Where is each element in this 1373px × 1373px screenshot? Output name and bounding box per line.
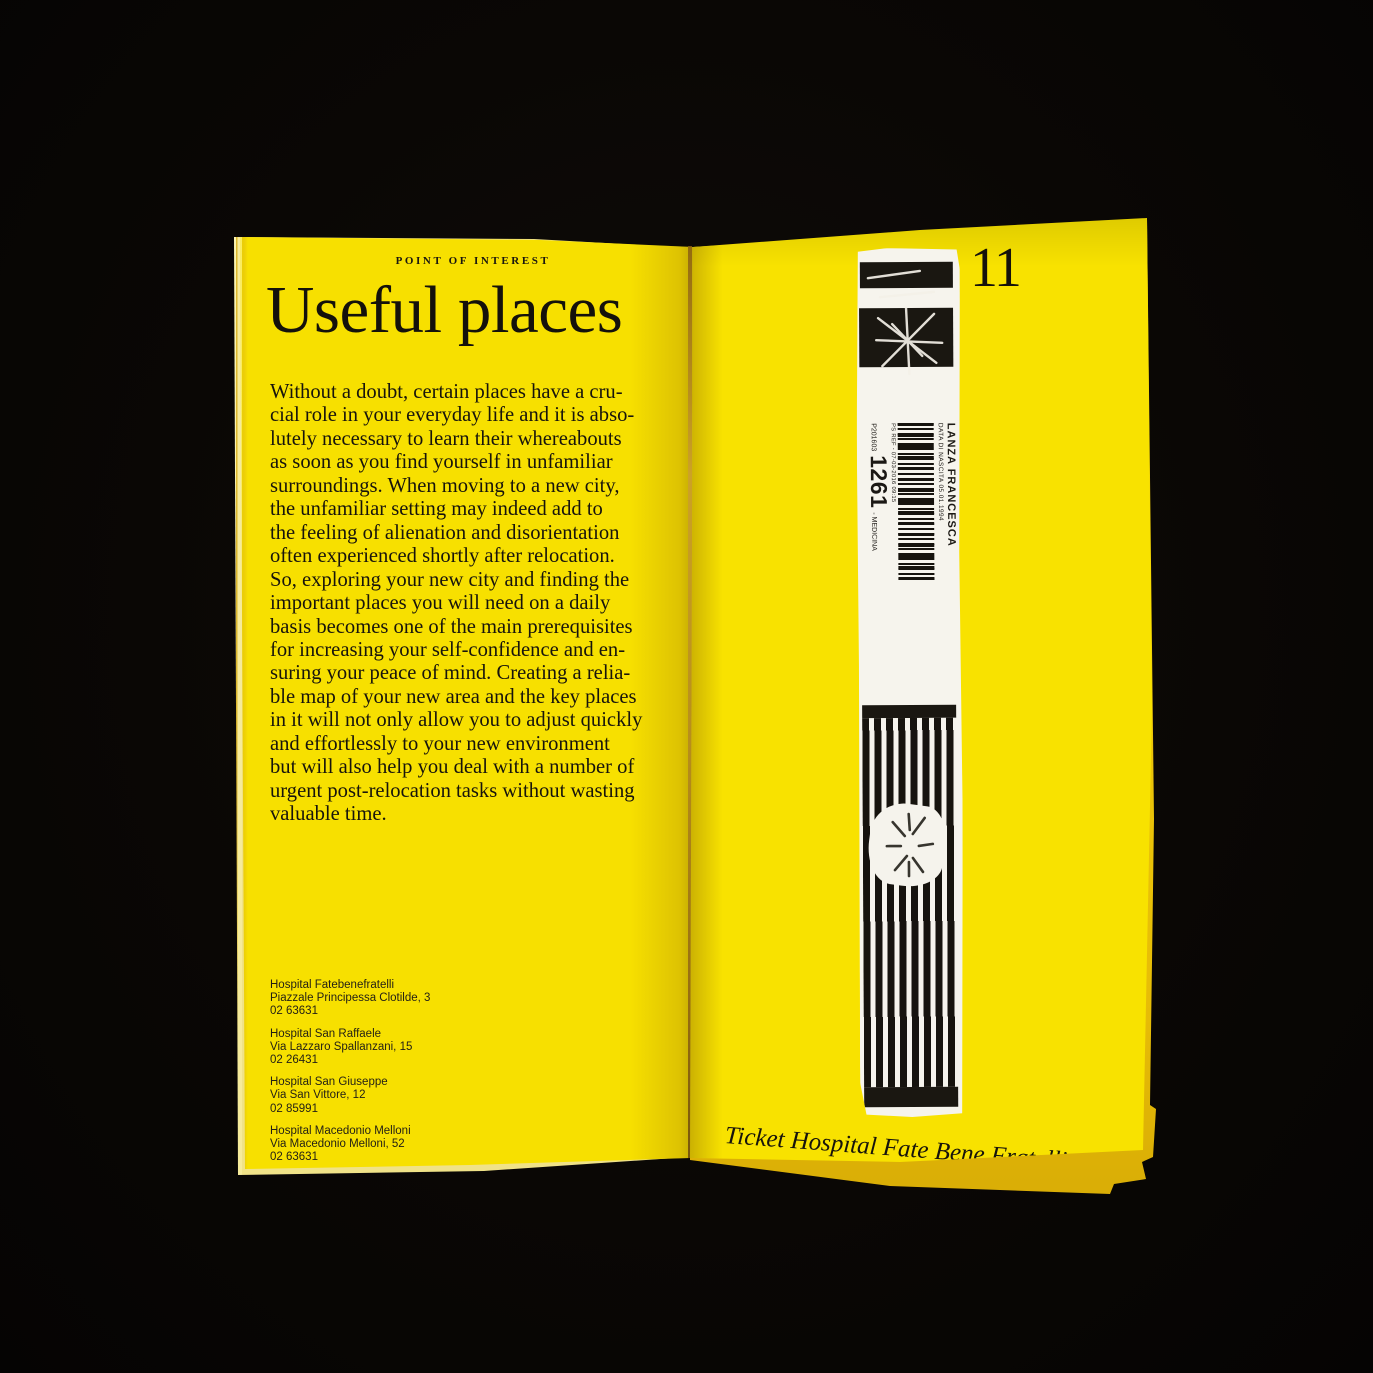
hospital-phone: 02 63631 — [270, 1151, 430, 1164]
list-item: Hospital Macedonio Melloni Via Macedonio… — [270, 1125, 430, 1165]
hospital-ticket: LANZA FRANCESCA DATA DI NASCITA 05.01.19… — [856, 248, 965, 1118]
ticket-barcode-block: LANZA FRANCESCA DATA DI NASCITA 05.01.19… — [861, 423, 958, 586]
hospital-phone: 02 85991 — [270, 1103, 430, 1116]
section-kicker: POINT OF INTEREST — [268, 255, 678, 267]
hospital-name: Hospital San Raffaele — [270, 1028, 430, 1041]
hospital-name: Hospital Macedonio Melloni — [270, 1125, 430, 1138]
ticket-stripes — [862, 718, 958, 1087]
list-item: Hospital San Raffaele Via Lazzaro Spalla… — [270, 1028, 430, 1068]
ticket-code-prefix: P201603 — [868, 423, 877, 451]
hospital-address: Via San Vittore, 12 — [270, 1089, 430, 1102]
hospital-phone: 02 26431 — [270, 1054, 430, 1067]
hospital-name: Hospital San Giuseppe — [270, 1076, 430, 1089]
barcode — [898, 423, 935, 581]
ticket-stripe-cap — [862, 705, 956, 718]
ticket-code-line: P201603 1261 - MEDICINA — [868, 423, 890, 585]
page-title: Useful places — [266, 275, 622, 345]
ticket-department: - MEDICINA — [868, 512, 877, 551]
ticket-stripe-end-band — [864, 1087, 958, 1107]
list-item: Hospital San Giuseppe Via San Vittore, 1… — [270, 1076, 430, 1116]
hospital-name: Hospital Fatebenefratelli — [270, 979, 430, 992]
ticket-patient-name: LANZA FRANCESCA — [945, 423, 958, 585]
hospital-address: Via Macedonio Melloni, 52 — [270, 1138, 430, 1151]
hospital-address: Via Lazzaro Spallanzani, 15 — [270, 1041, 430, 1054]
page-number: 11 — [970, 240, 1020, 296]
photo-background: POINT OF INTEREST Useful places Without … — [0, 0, 1373, 1373]
ticket-birth-date: DATA DI NASCITA 05.01.1994 — [937, 423, 945, 585]
ticket-number: 1261 — [868, 455, 889, 508]
hospital-list: Hospital Fatebenefratelli Piazzale Princ… — [270, 979, 430, 1173]
crease-marks-icon — [862, 718, 958, 1087]
left-page: POINT OF INTEREST Useful places Without … — [240, 235, 693, 1171]
list-item: Hospital Fatebenefratelli Piazzale Princ… — [270, 979, 430, 1019]
body-text: Without a doubt, certain places have a c… — [270, 381, 688, 827]
crease-marks-icon — [856, 248, 961, 399]
hospital-phone: 02 63631 — [270, 1005, 430, 1018]
hospital-address: Piazzale Principessa Clotilde, 3 — [270, 992, 430, 1005]
right-page: 11 LANZA FRANCESCA DATA DI NASCITA 05.01… — [690, 218, 1156, 1194]
